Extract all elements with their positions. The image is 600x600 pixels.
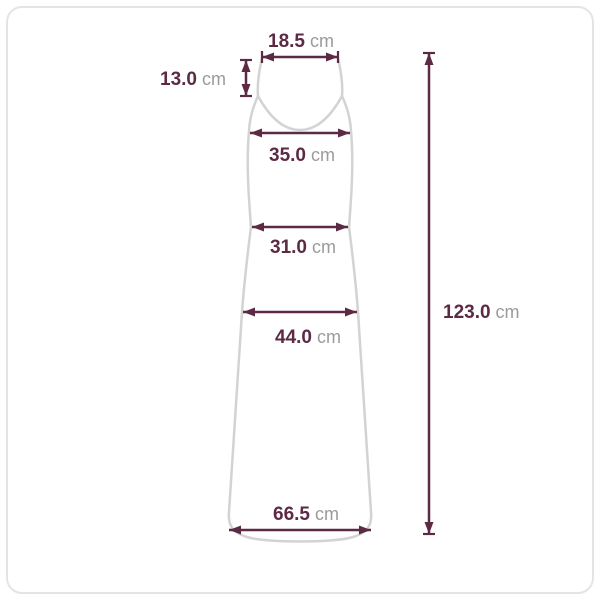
arrowhead-up <box>425 53 434 65</box>
hip-width-unit: cm <box>317 326 341 348</box>
hem-width-label: 66.5 cm <box>273 503 339 525</box>
arrowhead-left <box>243 308 255 317</box>
waist-width-label: 31.0 cm <box>270 236 336 258</box>
total-length-value: 123.0 <box>443 302 491 324</box>
arrowhead-right <box>338 129 350 138</box>
arrowhead-up <box>242 60 251 72</box>
bust-width-value: 35.0 <box>269 145 306 167</box>
hem-width-unit: cm <box>315 503 339 525</box>
top-width-value: 18.5 <box>268 31 305 53</box>
hip-width-measure <box>243 308 357 317</box>
total-length-measure <box>423 53 435 534</box>
arrowhead-down <box>425 522 434 534</box>
top-width-label: 18.5 cm <box>268 30 334 52</box>
arrowhead-right <box>336 223 348 232</box>
hip-width-value: 44.0 <box>275 327 312 349</box>
arrowhead-left <box>252 223 264 232</box>
hip-width-label: 44.0 cm <box>275 326 341 348</box>
arrowhead-down <box>242 84 251 96</box>
waist-width-unit: cm <box>312 236 336 258</box>
bust-width-unit: cm <box>311 144 335 166</box>
neckline-path <box>258 96 342 130</box>
waist-width-value: 31.0 <box>270 237 307 259</box>
arrowhead-left <box>250 129 262 138</box>
waist-width-measure <box>252 223 348 232</box>
strap-length-unit: cm <box>202 68 226 90</box>
arrowhead-left <box>262 53 274 62</box>
bust-width-label: 35.0 cm <box>269 144 335 166</box>
total-length-unit: cm <box>496 301 520 323</box>
top-width-unit: cm <box>310 30 334 52</box>
dress-measurement-diagram: 18.5 cm 13.0 cm 35.0 cm 31.0 cm 44.0 cm … <box>0 0 600 600</box>
total-length-label: 123.0 cm <box>443 301 520 323</box>
hem-width-value: 66.5 <box>273 504 310 526</box>
dress-outline <box>229 58 371 542</box>
strap-length-measure <box>240 60 252 96</box>
hem-width-measure <box>229 526 371 535</box>
arrowhead-right <box>345 308 357 317</box>
strap-length-label: 13.0 cm <box>160 68 226 90</box>
strap-length-value: 13.0 <box>160 69 197 91</box>
arrowhead-right <box>326 53 338 62</box>
